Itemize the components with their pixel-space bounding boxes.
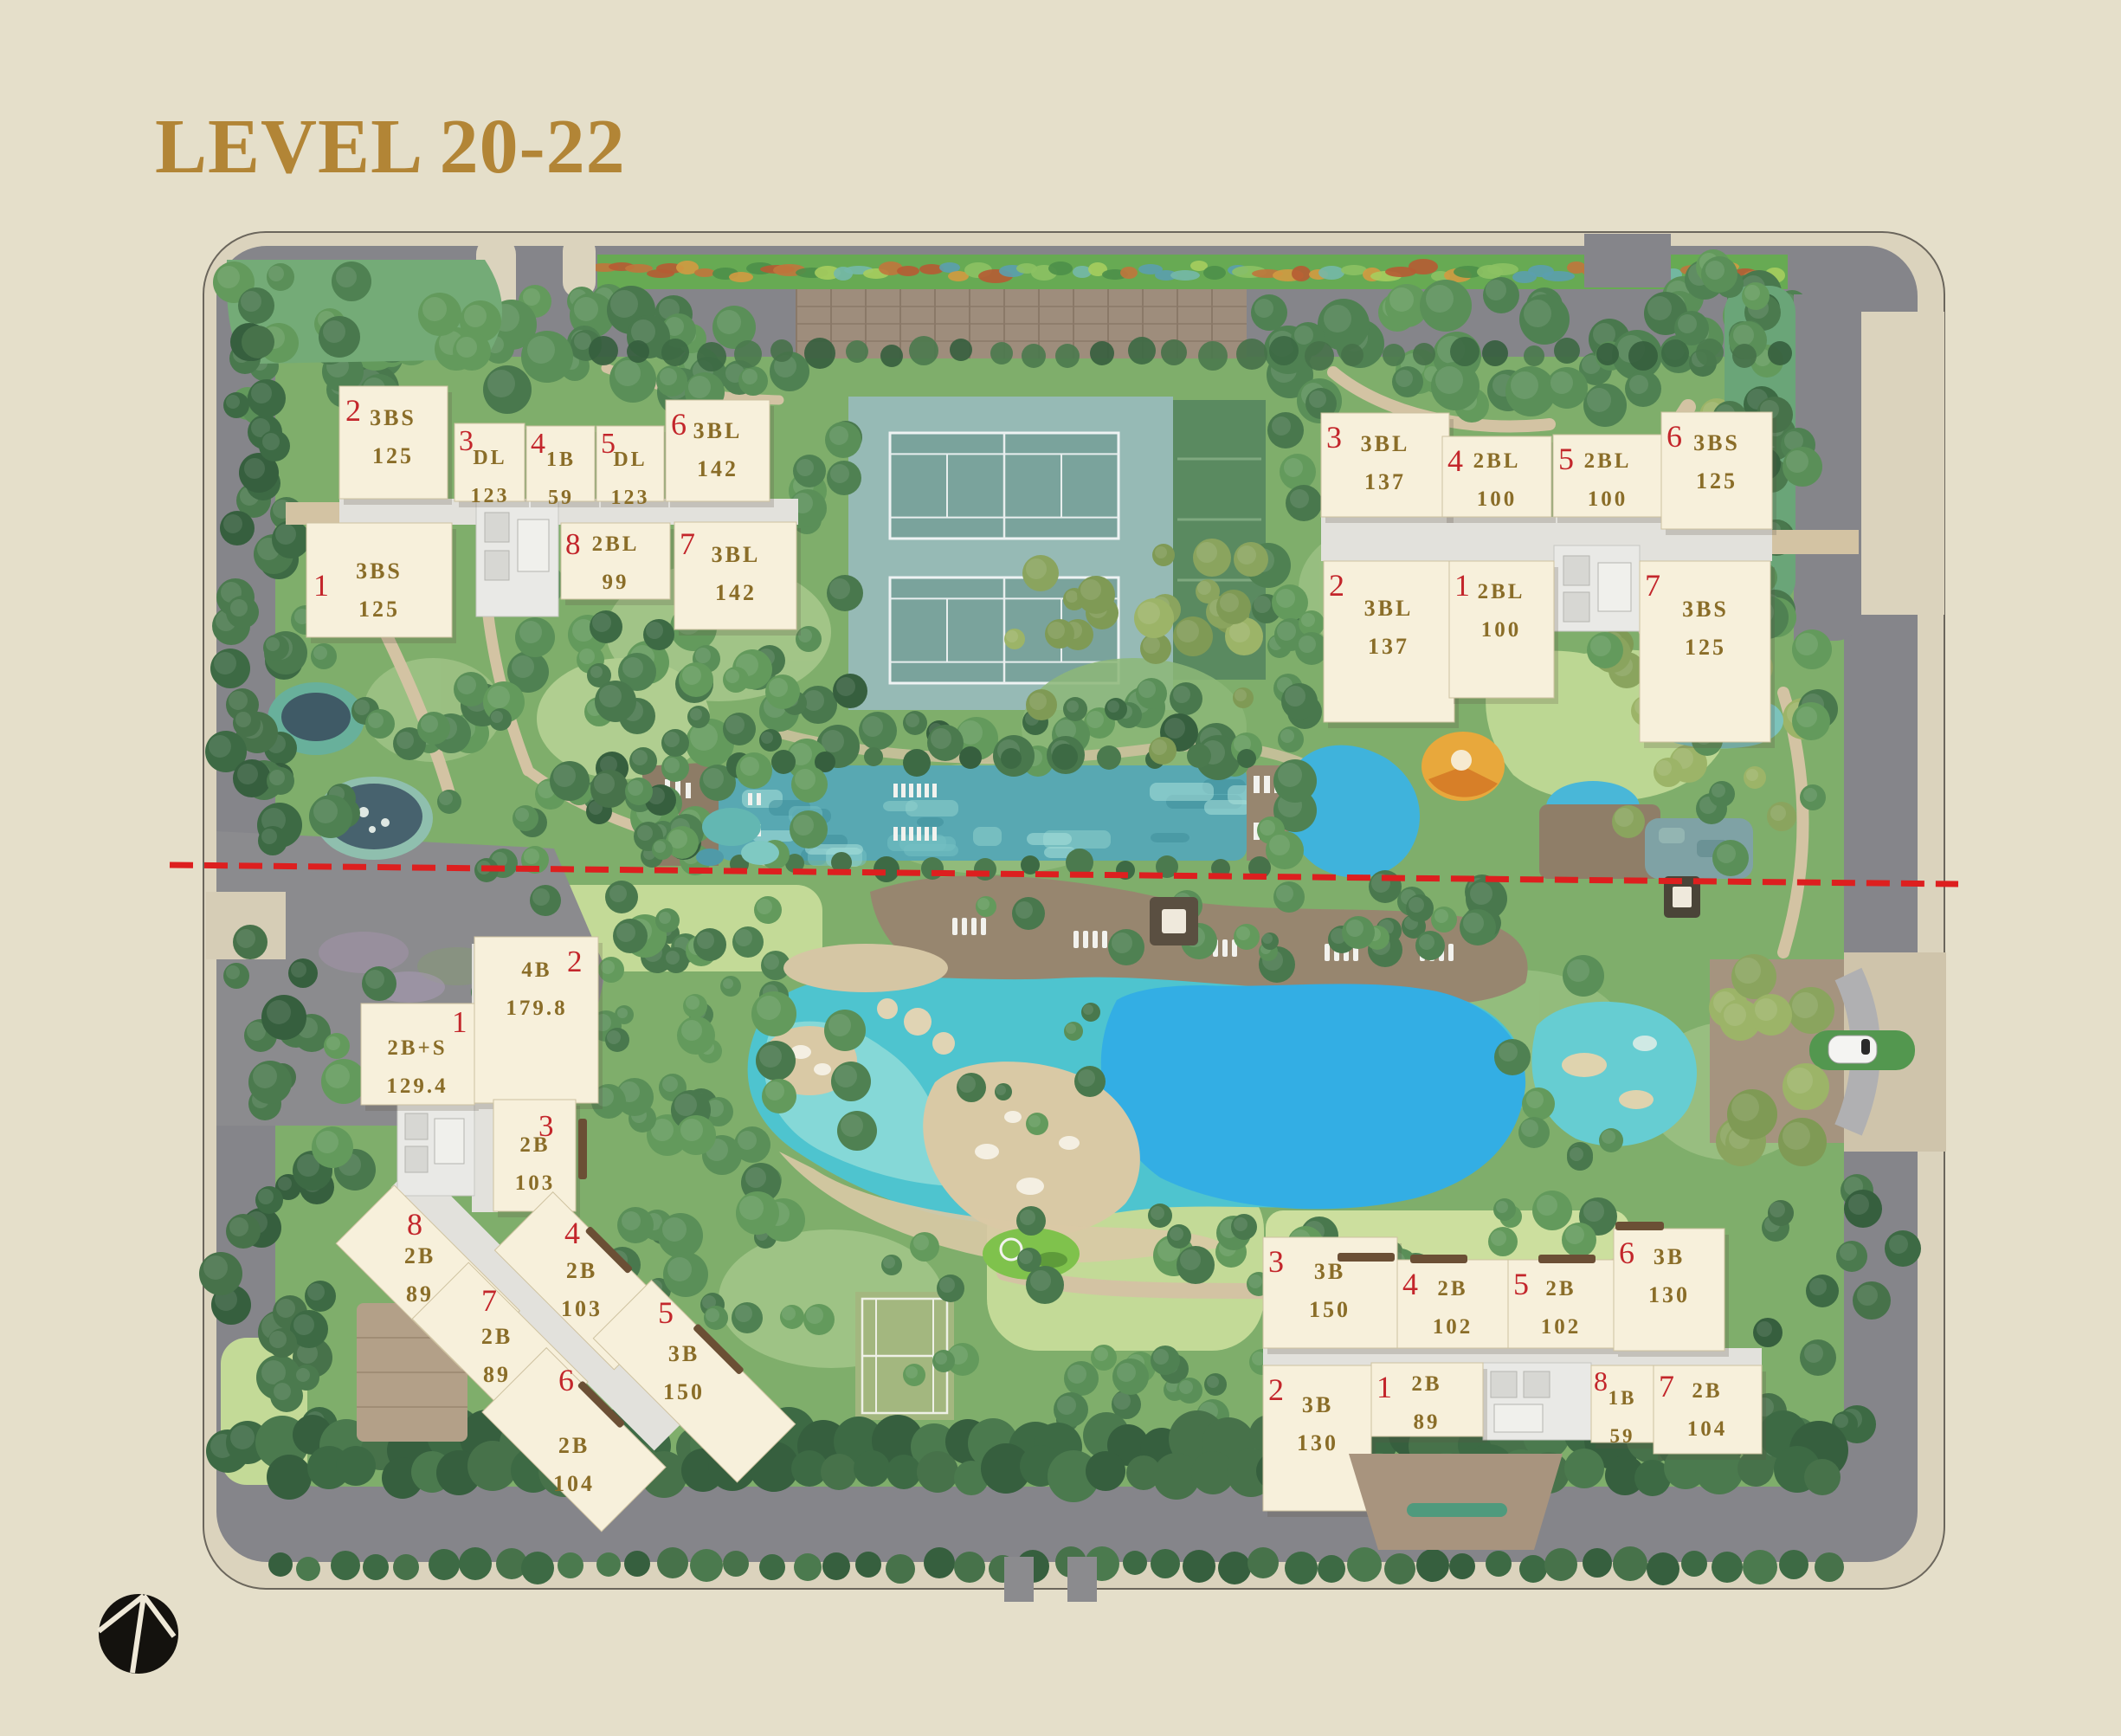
svg-text:4: 4 [531,428,545,460]
svg-text:89: 89 [483,1362,511,1387]
svg-text:5: 5 [658,1295,674,1330]
svg-text:4: 4 [1447,443,1463,478]
svg-text:3BS: 3BS [1693,430,1740,455]
svg-text:1: 1 [1376,1370,1392,1404]
svg-text:89: 89 [1414,1410,1441,1434]
svg-text:8: 8 [1594,1365,1608,1397]
svg-text:2B: 2B [566,1258,597,1283]
svg-text:3: 3 [459,425,474,457]
svg-text:103: 103 [561,1296,603,1321]
svg-text:2B+S: 2B+S [387,1036,447,1060]
svg-text:130: 130 [1297,1430,1338,1455]
svg-text:5: 5 [1513,1267,1529,1301]
svg-text:1: 1 [313,568,329,603]
svg-text:150: 150 [1309,1297,1351,1322]
svg-text:3B: 3B [1302,1392,1333,1417]
svg-text:1B: 1B [1608,1387,1637,1409]
svg-text:7: 7 [680,526,695,561]
svg-text:142: 142 [715,580,757,605]
svg-text:129.4: 129.4 [386,1075,448,1098]
svg-text:2: 2 [567,945,583,978]
svg-text:179.8: 179.8 [506,997,567,1020]
svg-text:125: 125 [358,597,400,622]
svg-text:6: 6 [671,407,687,442]
svg-text:7: 7 [1659,1369,1674,1404]
svg-text:3: 3 [1268,1244,1284,1279]
svg-text:2BL: 2BL [1478,580,1525,603]
svg-text:123: 123 [471,485,510,507]
svg-text:100: 100 [1477,487,1518,511]
svg-text:2: 2 [1329,568,1344,603]
svg-text:137: 137 [1368,634,1409,659]
svg-text:142: 142 [697,456,738,481]
svg-text:59: 59 [1610,1425,1635,1447]
svg-text:7: 7 [481,1283,497,1318]
svg-text:59: 59 [548,487,574,509]
svg-text:3BL: 3BL [712,542,761,567]
svg-text:100: 100 [1588,487,1628,511]
svg-text:2B: 2B [404,1243,435,1268]
svg-text:104: 104 [553,1471,595,1496]
svg-text:3BS: 3BS [1682,597,1729,622]
svg-text:6: 6 [1666,419,1682,454]
svg-text:5: 5 [1558,442,1574,476]
svg-text:4B: 4B [521,958,551,982]
svg-text:3BL: 3BL [1364,596,1414,621]
svg-text:4: 4 [1402,1267,1418,1301]
svg-text:2B: 2B [1692,1379,1722,1403]
svg-text:125: 125 [372,443,414,468]
svg-text:104: 104 [1687,1417,1728,1441]
svg-text:102: 102 [1433,1315,1473,1339]
svg-text:123: 123 [611,487,650,509]
svg-text:3BS: 3BS [356,558,403,584]
svg-text:3B: 3B [668,1341,699,1366]
svg-text:2: 2 [1268,1372,1284,1407]
svg-text:6: 6 [1619,1236,1634,1270]
svg-text:125: 125 [1696,468,1737,494]
svg-text:4: 4 [564,1216,580,1250]
svg-text:8: 8 [407,1207,422,1242]
svg-text:130: 130 [1648,1282,1690,1307]
svg-text:3B: 3B [1654,1244,1685,1269]
svg-text:2BL: 2BL [592,532,640,556]
svg-text:2: 2 [345,393,361,428]
svg-text:1B: 1B [546,449,576,471]
svg-text:2B: 2B [558,1433,590,1458]
svg-text:DL: DL [613,449,647,471]
svg-text:137: 137 [1364,469,1406,494]
svg-text:2BL: 2BL [1584,449,1632,473]
svg-text:125: 125 [1685,635,1726,660]
svg-text:103: 103 [515,1171,556,1195]
svg-text:99: 99 [603,571,629,594]
svg-text:2BL: 2BL [1473,449,1521,473]
svg-text:3BL: 3BL [693,418,743,443]
svg-text:3BS: 3BS [370,405,416,430]
svg-text:2B: 2B [1437,1277,1467,1300]
svg-text:8: 8 [565,527,581,561]
svg-text:7: 7 [1645,568,1660,603]
svg-text:2B: 2B [1411,1372,1441,1396]
svg-text:1: 1 [452,1005,467,1039]
svg-text:2B: 2B [1545,1277,1576,1300]
svg-text:LEVEL 20-22: LEVEL 20-22 [155,104,626,190]
svg-text:150: 150 [663,1379,705,1404]
svg-text:2B: 2B [519,1133,550,1157]
svg-text:3: 3 [1326,420,1342,455]
svg-text:6: 6 [558,1363,574,1397]
svg-text:3B: 3B [1314,1259,1345,1284]
svg-text:3BL: 3BL [1361,431,1410,456]
svg-text:2B: 2B [481,1324,513,1349]
svg-text:102: 102 [1541,1315,1582,1339]
svg-text:1: 1 [1454,568,1470,603]
svg-text:100: 100 [1481,618,1522,642]
svg-text:DL: DL [473,447,506,469]
